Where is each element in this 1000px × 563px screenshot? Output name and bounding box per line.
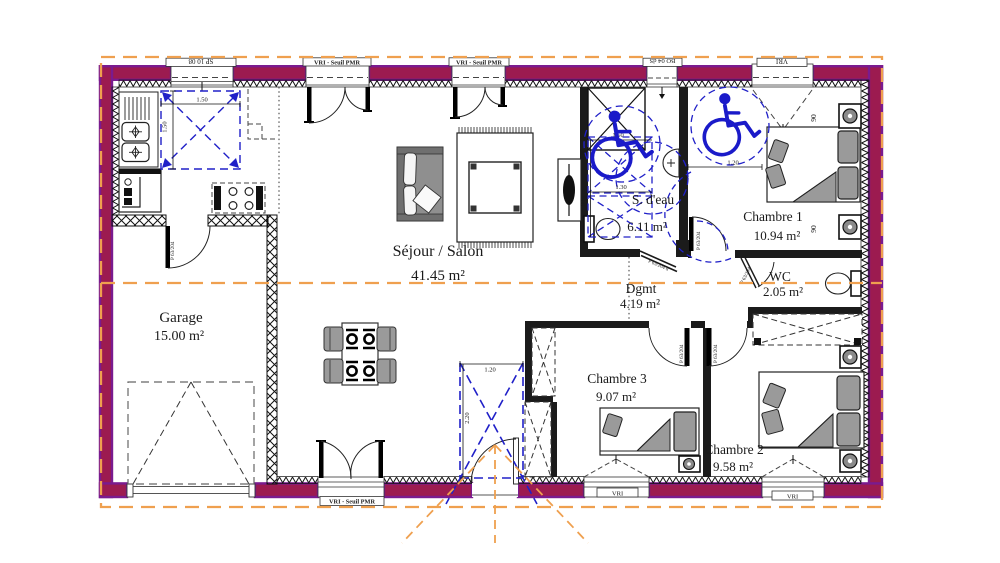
svg-text:P 63/204: P 63/204 bbox=[679, 344, 685, 363]
svg-text:SP 10 08: SP 10 08 bbox=[188, 57, 214, 65]
svg-text:VRI: VRI bbox=[775, 57, 788, 65]
svg-text:Dgmt: Dgmt bbox=[626, 281, 657, 296]
svg-text:9.58 m²: 9.58 m² bbox=[713, 459, 753, 474]
svg-text:VRI: VRI bbox=[612, 490, 623, 497]
svg-text:6.11 m²: 6.11 m² bbox=[627, 219, 667, 234]
svg-text:80: 80 bbox=[580, 200, 587, 207]
svg-text:Chambre 3: Chambre 3 bbox=[587, 371, 647, 386]
svg-text:P 63/204: P 63/204 bbox=[696, 231, 702, 250]
svg-text:90: 90 bbox=[809, 225, 818, 233]
svg-text:S. d'eau: S. d'eau bbox=[632, 192, 674, 207]
svg-text:VRI - Seuil PMR: VRI - Seuil PMR bbox=[456, 59, 502, 66]
svg-text:VRI - Seuil PMR: VRI - Seuil PMR bbox=[314, 59, 360, 66]
svg-text:4.19 m²: 4.19 m² bbox=[620, 296, 660, 311]
svg-text:P 63/204: P 63/204 bbox=[170, 241, 176, 260]
svg-text:10.94 m²: 10.94 m² bbox=[754, 228, 801, 243]
svg-text:P 63/204: P 63/204 bbox=[713, 344, 719, 363]
svg-text:9.07 m²: 9.07 m² bbox=[596, 389, 636, 404]
svg-text:VRI - Seuil PMR: VRI - Seuil PMR bbox=[329, 499, 375, 506]
svg-text:41.45 m²: 41.45 m² bbox=[411, 268, 465, 284]
svg-text:1.20: 1.20 bbox=[727, 160, 738, 167]
svg-text:VRI: VRI bbox=[787, 493, 798, 500]
svg-text:Chambre 2: Chambre 2 bbox=[704, 442, 764, 457]
svg-text:15.00 m²: 15.00 m² bbox=[154, 329, 204, 344]
svg-text:80: 80 bbox=[580, 149, 587, 156]
svg-text:90: 90 bbox=[809, 114, 818, 122]
svg-text:Garage: Garage bbox=[159, 310, 203, 326]
svg-text:2.20: 2.20 bbox=[464, 412, 471, 423]
svg-text:2.05 m²: 2.05 m² bbox=[763, 284, 803, 299]
svg-text:Chambre 1: Chambre 1 bbox=[743, 209, 803, 224]
svg-text:1.30: 1.30 bbox=[615, 184, 626, 191]
svg-text:1.20: 1.20 bbox=[484, 367, 495, 374]
svg-text:Séjour / Salon: Séjour / Salon bbox=[393, 243, 484, 260]
svg-text:1.50: 1.50 bbox=[162, 121, 169, 132]
svg-text:1.50: 1.50 bbox=[196, 97, 207, 104]
svg-text:WC: WC bbox=[769, 269, 791, 284]
